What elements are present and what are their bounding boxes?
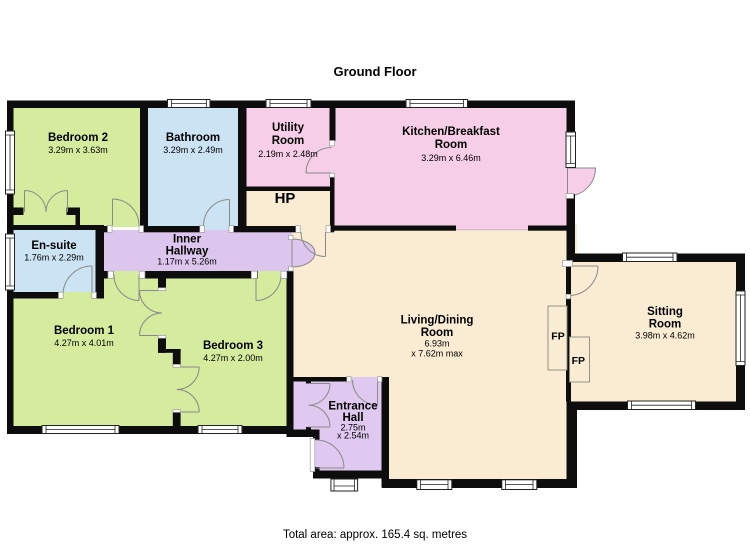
svg-text:Inner: Inner — [173, 234, 202, 246]
svg-text:Bedroom 1: Bedroom 1 — [54, 325, 115, 337]
svg-text:1.17m x 5.26m: 1.17m x 5.26m — [157, 257, 217, 267]
svg-text:Room: Room — [421, 327, 454, 339]
svg-text:3.29m x 2.49m: 3.29m x 2.49m — [163, 145, 223, 155]
svg-text:Ground Floor: Ground Floor — [333, 64, 416, 79]
svg-text:Kitchen/Breakfast: Kitchen/Breakfast — [402, 126, 500, 138]
svg-text:FP: FP — [572, 355, 585, 367]
svg-text:6.93m: 6.93m — [424, 339, 449, 349]
svg-text:FP: FP — [551, 331, 564, 343]
svg-text:Room: Room — [435, 139, 468, 151]
svg-text:Room: Room — [272, 135, 305, 147]
svg-text:Bathroom: Bathroom — [166, 132, 220, 144]
svg-text:Sitting: Sitting — [647, 306, 683, 318]
svg-text:2.19m x 2.48m: 2.19m x 2.48m — [258, 149, 318, 159]
svg-text:4.27m x 4.01m: 4.27m x 4.01m — [54, 338, 114, 348]
svg-text:Room: Room — [649, 319, 682, 331]
svg-text:3.29m x 6.46m: 3.29m x 6.46m — [421, 153, 481, 163]
svg-text:Bedroom 2: Bedroom 2 — [48, 132, 108, 144]
svg-text:1.76m x 2.29m: 1.76m x 2.29m — [24, 253, 84, 263]
svg-text:x 2.54m: x 2.54m — [337, 431, 369, 441]
svg-text:En-suite: En-suite — [31, 240, 76, 252]
svg-text:Total area: approx. 165.4 sq.: Total area: approx. 165.4 sq. metres — [283, 529, 467, 541]
svg-text:Living/Dining: Living/Dining — [401, 315, 474, 327]
svg-text:3.98m x 4.62m: 3.98m x 4.62m — [635, 331, 695, 341]
svg-text:x 7.62m max: x 7.62m max — [411, 349, 463, 359]
svg-text:Entrance: Entrance — [328, 401, 377, 413]
svg-text:3.29m x 3.63m: 3.29m x 3.63m — [48, 145, 108, 155]
svg-text:Bedroom 3: Bedroom 3 — [203, 340, 263, 352]
svg-text:Utility: Utility — [272, 122, 305, 134]
svg-text:4.27m x 2.00m: 4.27m x 2.00m — [203, 353, 263, 363]
svg-text:HP: HP — [275, 190, 296, 207]
